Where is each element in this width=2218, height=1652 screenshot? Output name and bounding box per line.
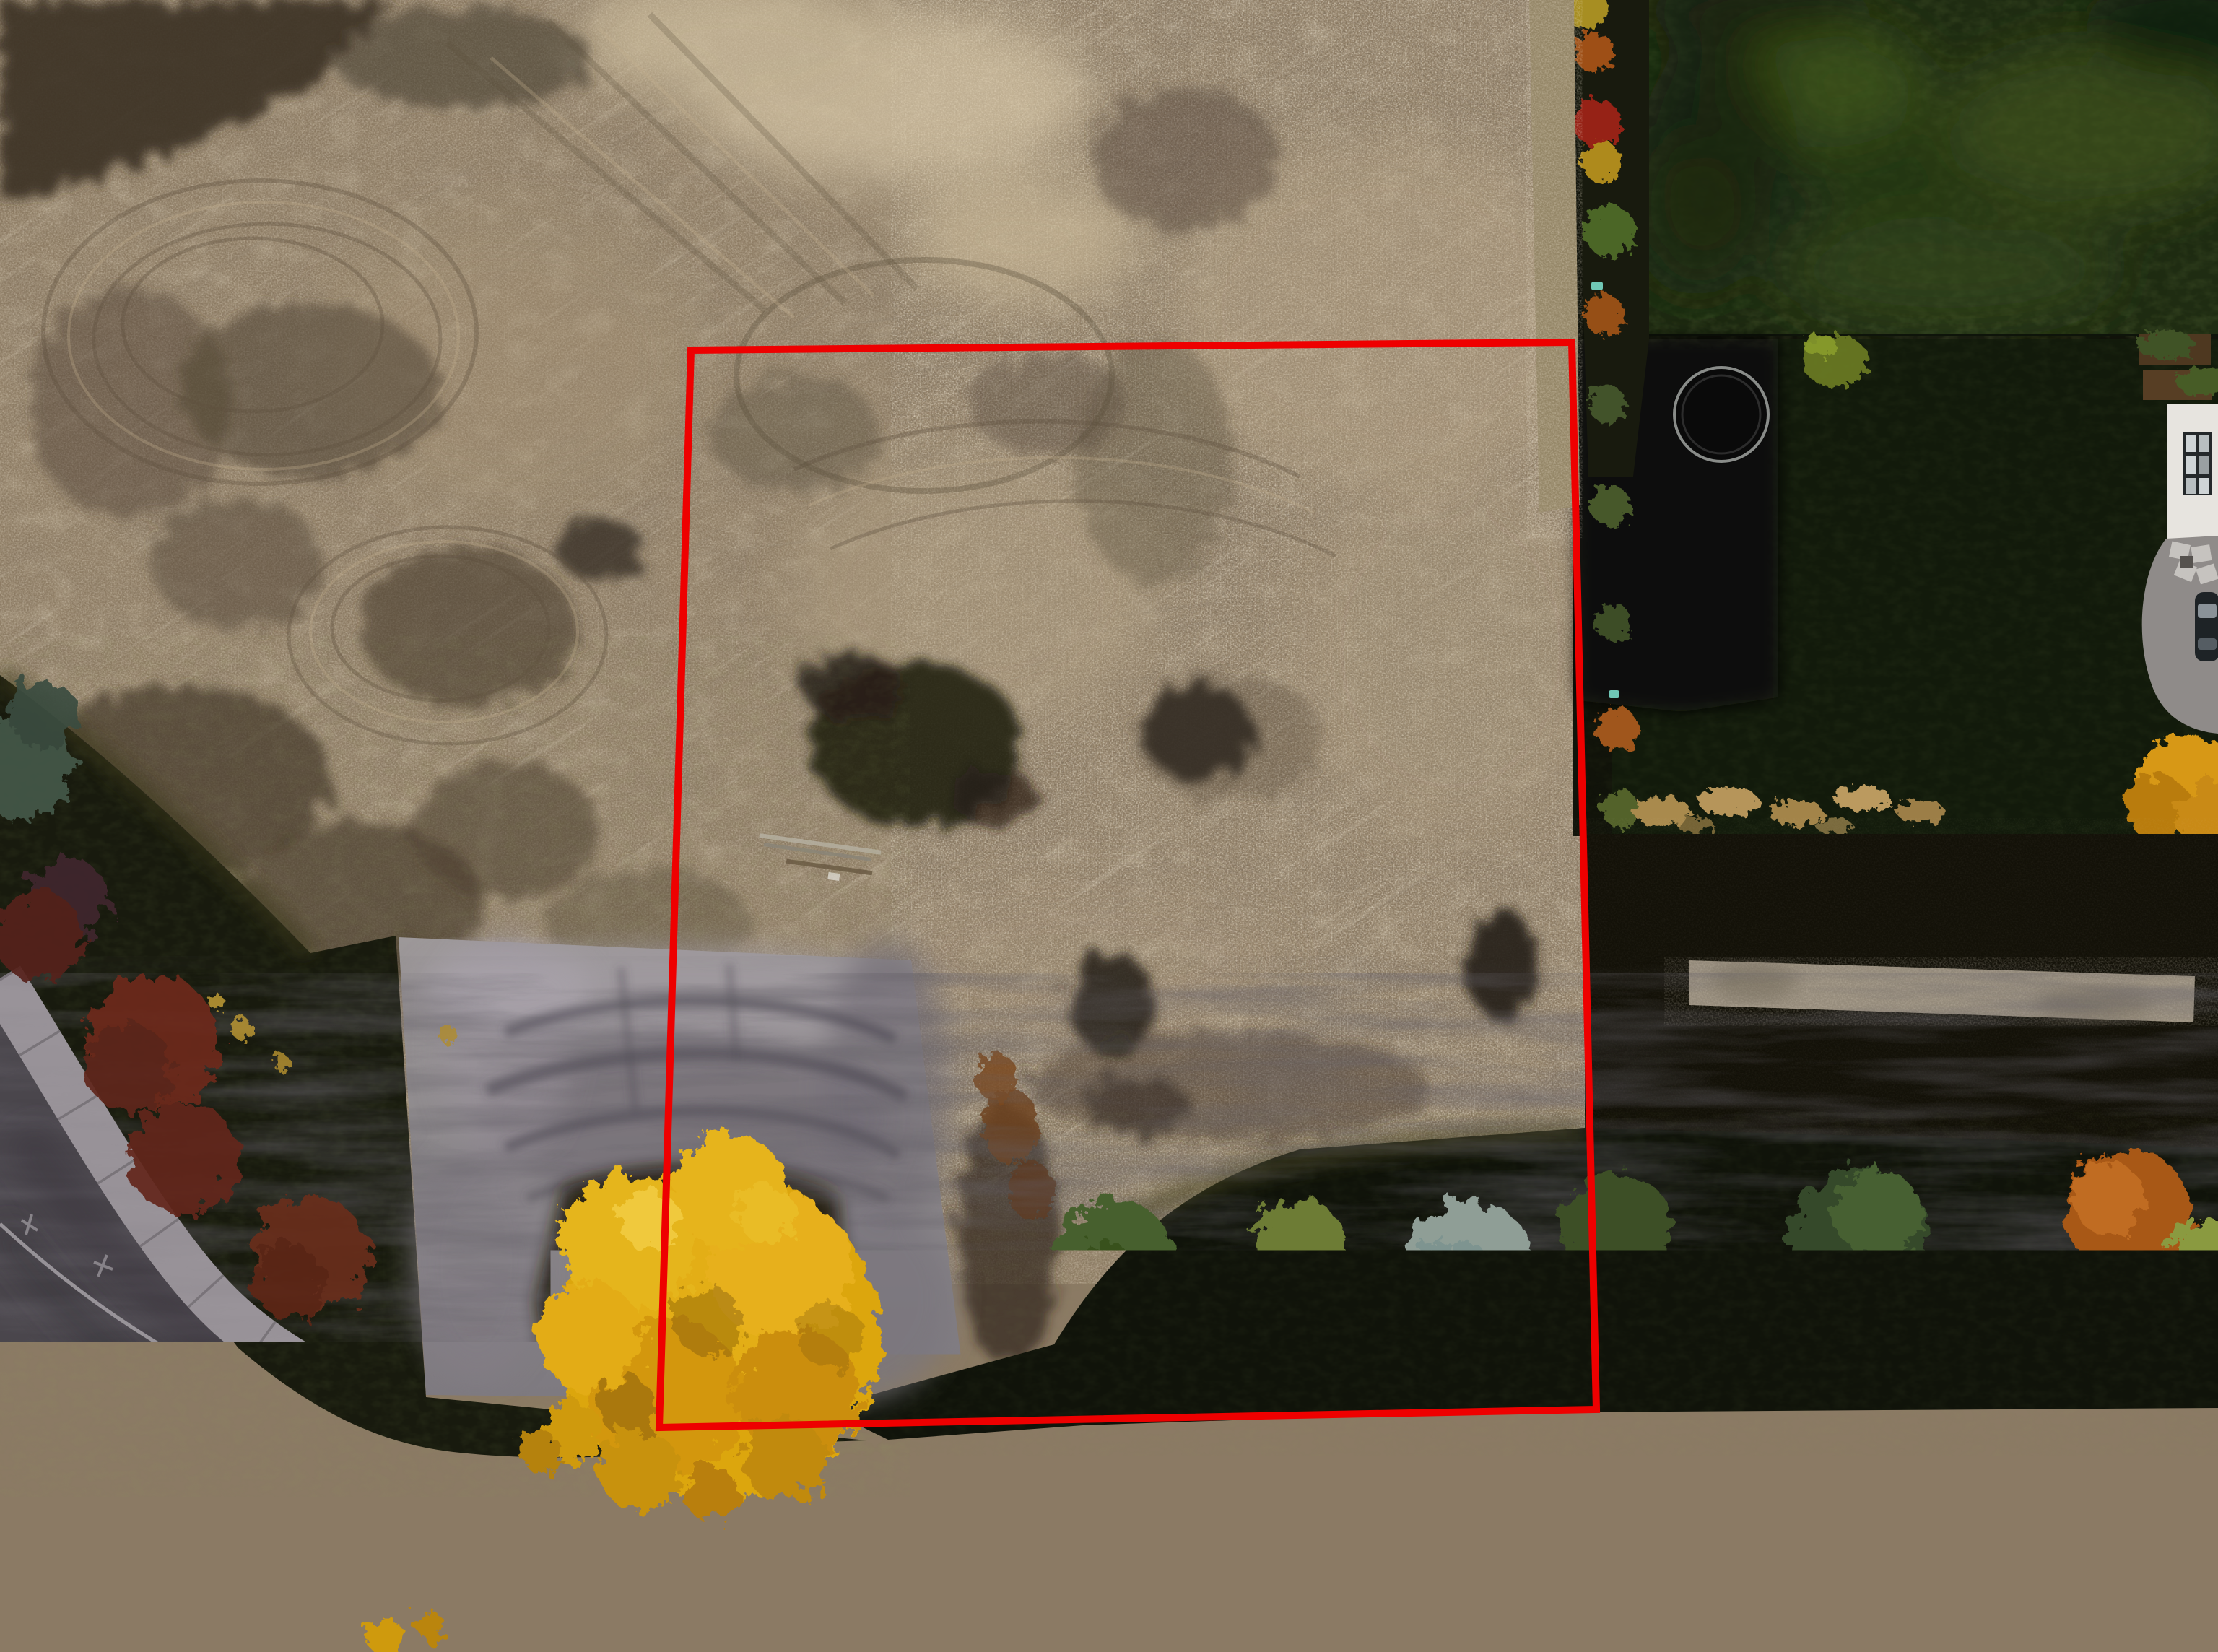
svg-text:MLS: MLS — [2097, 1584, 2167, 1622]
